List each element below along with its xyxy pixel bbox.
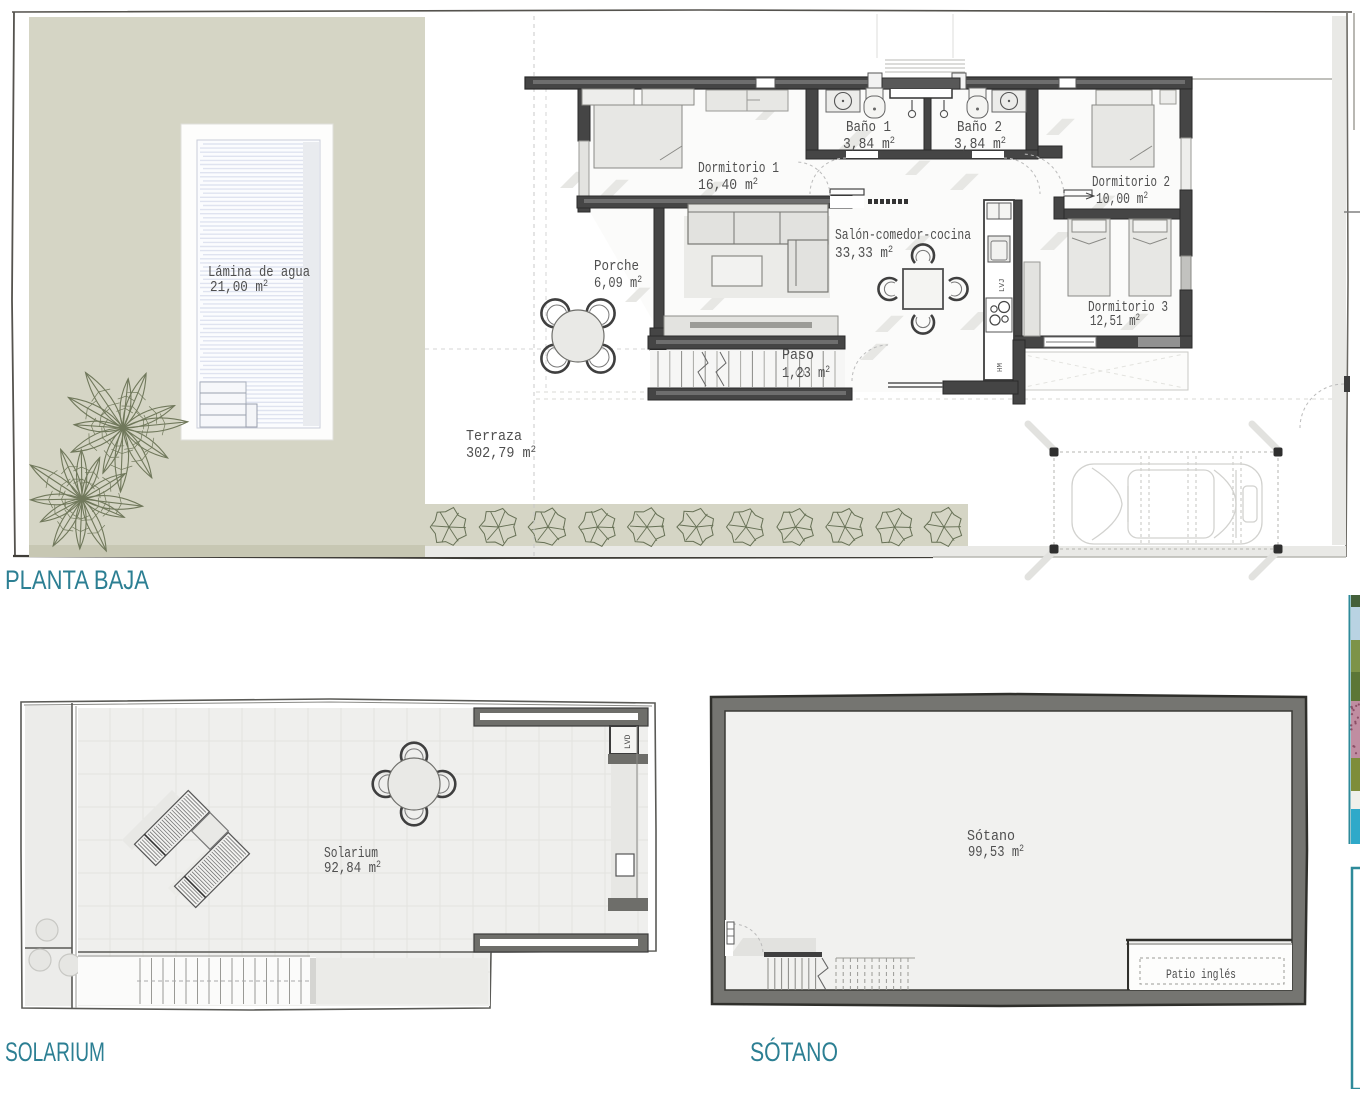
svg-text:99,53 m2: 99,53 m2 [968, 844, 1024, 861]
svg-text:Sótano: Sótano [967, 828, 1015, 845]
svg-text:Baño 2: Baño 2 [957, 119, 1002, 136]
svg-text:10,00 m2: 10,00 m2 [1096, 191, 1148, 208]
svg-text:21,00 m2: 21,00 m2 [210, 279, 268, 296]
svg-text:Salón-comedor-cocina: Salón-comedor-cocina [835, 227, 971, 244]
svg-text:92,84 m2: 92,84 m2 [324, 860, 381, 877]
svg-text:SOLARIUM: SOLARIUM [5, 1037, 105, 1067]
svg-text:Terraza: Terraza [466, 428, 522, 445]
svg-text:33,33 m2: 33,33 m2 [835, 245, 893, 262]
svg-text:12,51 m2: 12,51 m2 [1090, 313, 1140, 330]
svg-text:16,40 m2: 16,40 m2 [698, 177, 758, 194]
svg-text:PLANTA BAJA: PLANTA BAJA [5, 565, 149, 595]
svg-text:LVJ: LVJ [999, 278, 1007, 292]
svg-text:1,23 m2: 1,23 m2 [782, 365, 830, 382]
svg-text:LVD: LVD [624, 734, 633, 749]
svg-text:Paso: Paso [782, 347, 814, 364]
svg-text:Patio inglés: Patio inglés [1166, 967, 1236, 982]
svg-text:HM: HM [997, 362, 1005, 372]
svg-text:3,84 m2: 3,84 m2 [843, 136, 895, 153]
svg-text:302,79 m2: 302,79 m2 [466, 445, 536, 462]
svg-text:Baño 1: Baño 1 [846, 119, 891, 136]
svg-text:Dormitorio 2: Dormitorio 2 [1092, 174, 1170, 191]
svg-text:SÓTANO: SÓTANO [750, 1036, 838, 1067]
svg-text:3,84 m2: 3,84 m2 [954, 136, 1006, 153]
svg-text:Dormitorio 1: Dormitorio 1 [698, 160, 779, 177]
svg-text:Porche: Porche [594, 258, 639, 275]
svg-text:6,09 m2: 6,09 m2 [594, 275, 642, 292]
